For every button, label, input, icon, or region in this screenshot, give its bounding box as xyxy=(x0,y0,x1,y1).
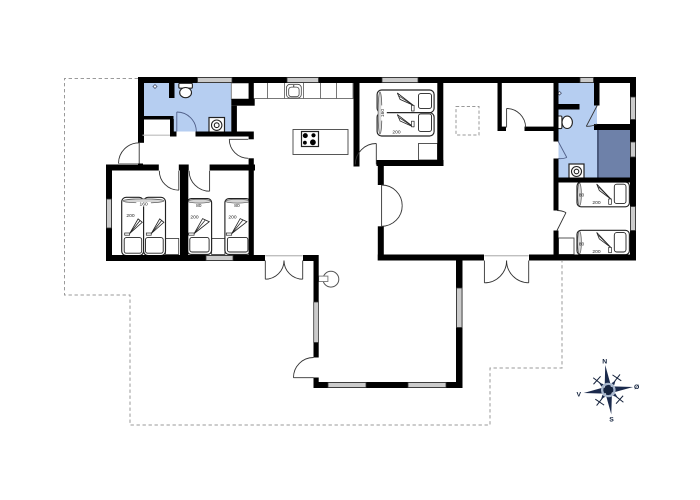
svg-text:80: 80 xyxy=(579,241,585,247)
svg-text:80: 80 xyxy=(196,203,202,209)
svg-text:V: V xyxy=(577,391,582,398)
svg-text:200: 200 xyxy=(126,213,134,219)
svg-text:200: 200 xyxy=(190,214,198,220)
svg-text:160: 160 xyxy=(380,109,386,117)
svg-text:200: 200 xyxy=(392,130,400,136)
svg-text:200: 200 xyxy=(592,249,600,255)
svg-text:80: 80 xyxy=(579,192,585,198)
svg-text:160: 160 xyxy=(140,201,148,207)
svg-text:80: 80 xyxy=(234,203,240,209)
svg-text:S: S xyxy=(609,417,614,424)
svg-text:N: N xyxy=(602,358,607,365)
svg-text:Ø: Ø xyxy=(634,384,639,391)
svg-text:200: 200 xyxy=(592,200,600,206)
svg-text:200: 200 xyxy=(228,214,236,220)
